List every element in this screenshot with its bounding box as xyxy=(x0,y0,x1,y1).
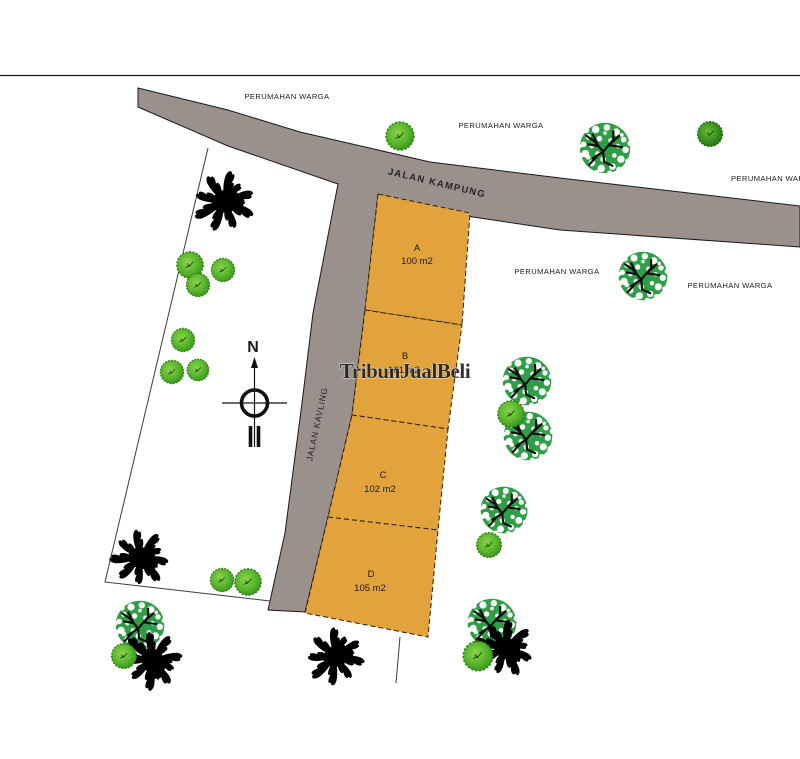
surrounding-label: PERUMAHAN WARGA xyxy=(458,121,544,130)
surrounding-label: PERUMAHAN WAF xyxy=(731,174,800,183)
bush xyxy=(211,258,234,281)
bush xyxy=(386,122,414,150)
surrounding-label: PERUMAHAN WARGA xyxy=(687,281,773,290)
compass-arrowhead-icon xyxy=(251,357,258,368)
bush xyxy=(498,401,524,427)
bush xyxy=(187,359,209,381)
bush xyxy=(210,568,233,591)
palm-tree xyxy=(299,621,370,692)
plot-d-id: D xyxy=(368,569,375,580)
plot-c-area: 102 m2 xyxy=(364,484,396,495)
bush xyxy=(698,122,723,147)
compass-north-label: N xyxy=(247,339,259,356)
plot-d-extension-line xyxy=(396,637,400,683)
palm-tree xyxy=(193,170,255,232)
plot-a-id: A xyxy=(414,243,421,254)
bush xyxy=(171,328,194,351)
plot-c-id: C xyxy=(380,470,387,481)
dappled-tree xyxy=(478,487,530,536)
surrounding-label: PERUMAHAN WARGA xyxy=(244,92,330,101)
plot-d-area: 105 m2 xyxy=(354,583,386,594)
tribunjualbeli-watermark: TribunJualBeli xyxy=(340,359,471,383)
site-plan-canvas: N PERUMAHAN WARGA PERUMAHAN WARGA PERUMA… xyxy=(0,0,800,759)
north-compass xyxy=(222,357,287,447)
bush xyxy=(186,273,209,296)
bush xyxy=(463,641,492,670)
surrounding-label: PERUMAHAN WARGA xyxy=(514,267,600,276)
dappled-tree xyxy=(500,357,554,408)
bush xyxy=(112,644,137,669)
plot-a-area: 100 m2 xyxy=(401,256,433,267)
bush xyxy=(235,569,261,595)
bush xyxy=(477,533,502,558)
bush xyxy=(160,360,183,383)
dappled-tree xyxy=(577,123,633,176)
road-shape xyxy=(138,88,800,612)
dappled-tree xyxy=(616,252,670,303)
site-plan: N PERUMAHAN WARGA PERUMAHAN WARGA PERUMA… xyxy=(0,0,800,759)
palm-tree xyxy=(101,518,178,595)
